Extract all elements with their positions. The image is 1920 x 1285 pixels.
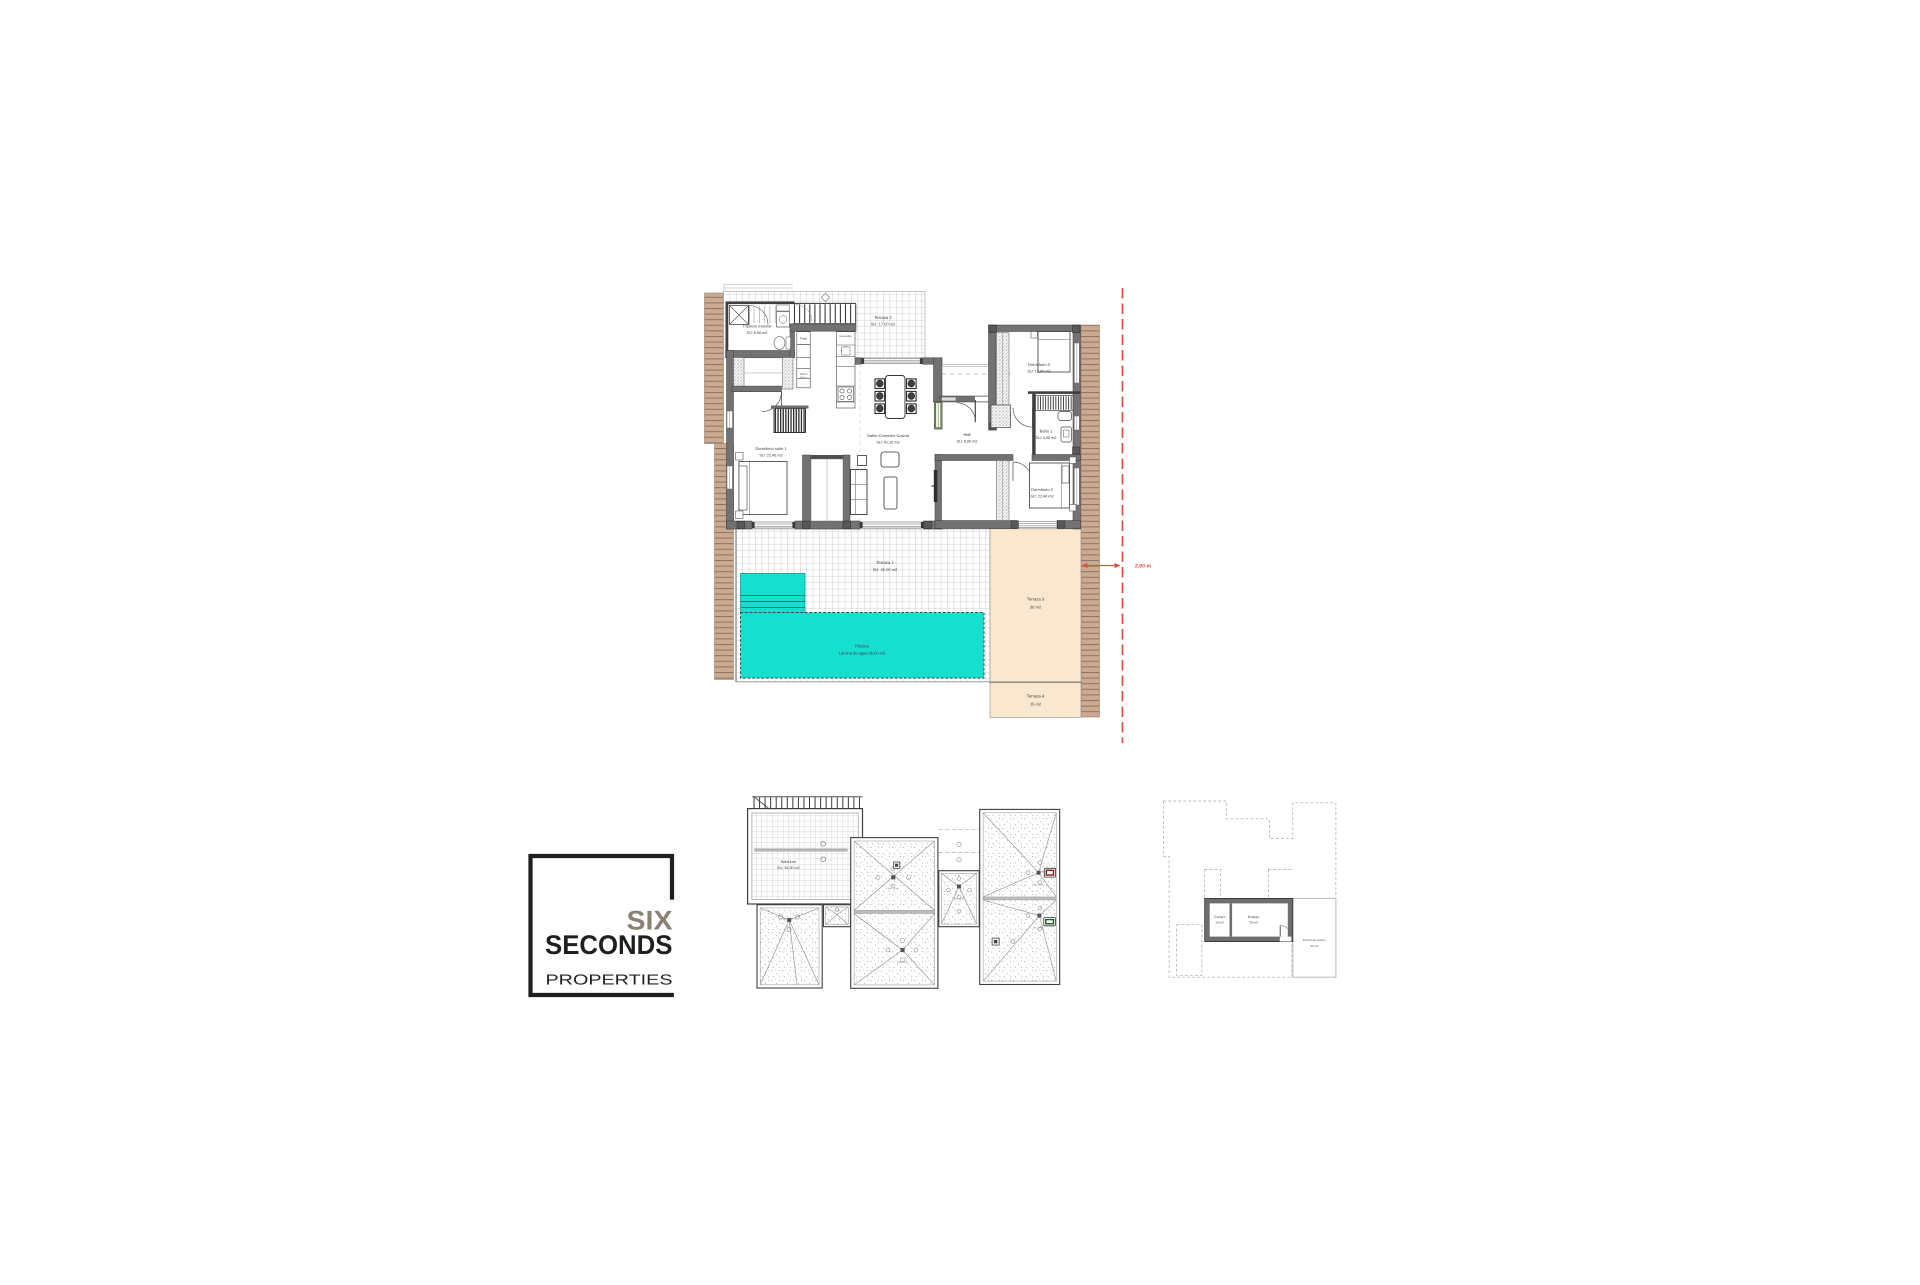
svg-text:Dormitorio sótano: Dormitorio sótano bbox=[1303, 938, 1326, 942]
svg-text:Dormitorio suite 1: Dormitorio suite 1 bbox=[755, 446, 787, 451]
svg-text:Pte 1.6%: Pte 1.6% bbox=[954, 898, 965, 901]
svg-text:SU: 13,00 m2: SU: 13,00 m2 bbox=[1027, 370, 1050, 374]
svg-text:Solarium: Solarium bbox=[781, 859, 796, 864]
svg-text:2,00 m: 2,00 m bbox=[1135, 564, 1152, 570]
svg-text:Trastero: Trastero bbox=[1214, 915, 1226, 919]
svg-text:Hall: Hall bbox=[964, 432, 971, 437]
svg-text:SU: 17,00 m2: SU: 17,00 m2 bbox=[871, 322, 896, 327]
svg-text:lavavajillas: lavavajillas bbox=[839, 335, 852, 338]
svg-text:Terraza 4: Terraza 4 bbox=[1027, 694, 1045, 699]
svg-text:30 m2: 30 m2 bbox=[1310, 944, 1318, 948]
svg-text:30 m2: 30 m2 bbox=[1249, 921, 1258, 925]
svg-text:SU: 34,00 m2: SU: 34,00 m2 bbox=[777, 866, 800, 870]
svg-text:SU: 41,10 m2: SU: 41,10 m2 bbox=[876, 441, 899, 445]
svg-text:Piscina: Piscina bbox=[855, 644, 869, 649]
svg-text:SU: 22,40 m2: SU: 22,40 m2 bbox=[759, 454, 782, 458]
svg-text:Micro: Micro bbox=[800, 375, 807, 379]
svg-text:Terraza 3: Terraza 3 bbox=[1027, 597, 1045, 602]
svg-text:Pte 1.6%: Pte 1.6% bbox=[1033, 884, 1044, 887]
svg-text:Trastero exterior: Trastero exterior bbox=[742, 324, 772, 329]
svg-text:Pte 1.6%: Pte 1.6% bbox=[888, 888, 899, 891]
svg-text:PROPERTIES: PROPERTIES bbox=[546, 972, 673, 988]
svg-text:Lámina de agua 36,00 m2: Lámina de agua 36,00 m2 bbox=[839, 651, 886, 656]
svg-text:SU: 8,00 m2: SU: 8,00 m2 bbox=[956, 440, 977, 444]
svg-text:SU: 45,00 m2: SU: 45,00 m2 bbox=[873, 567, 898, 572]
svg-text:Terraza 1: Terraza 1 bbox=[876, 560, 894, 565]
svg-text:Bodega: Bodega bbox=[1248, 915, 1259, 919]
svg-text:Baño 1: Baño 1 bbox=[1040, 429, 1053, 434]
svg-text:Pte 1.6%: Pte 1.6% bbox=[783, 918, 794, 921]
svg-text:SECONDS: SECONDS bbox=[545, 930, 673, 960]
svg-text:10 m2: 10 m2 bbox=[1215, 921, 1224, 925]
svg-text:SU: 6,00 m2: SU: 6,00 m2 bbox=[746, 331, 767, 335]
svg-text:36 m2: 36 m2 bbox=[1030, 605, 1042, 610]
svg-text:Frigo: Frigo bbox=[800, 337, 807, 341]
svg-text:15 m2: 15 m2 bbox=[1030, 702, 1042, 707]
svg-text:Pte 1.6%: Pte 1.6% bbox=[897, 961, 908, 964]
svg-text:Pte 1.6%: Pte 1.6% bbox=[1033, 927, 1044, 930]
svg-text:Dormitorio 3: Dormitorio 3 bbox=[1028, 362, 1051, 367]
svg-text:Dormitorio 2: Dormitorio 2 bbox=[1031, 487, 1054, 492]
svg-text:Terraza 2: Terraza 2 bbox=[874, 315, 892, 320]
svg-text:Salón-Comedor-Cocina: Salón-Comedor-Cocina bbox=[867, 433, 910, 438]
svg-text:SU: 4,00 m2: SU: 4,00 m2 bbox=[1035, 436, 1056, 440]
svg-text:SU: 22,40 m2: SU: 22,40 m2 bbox=[1030, 495, 1053, 499]
